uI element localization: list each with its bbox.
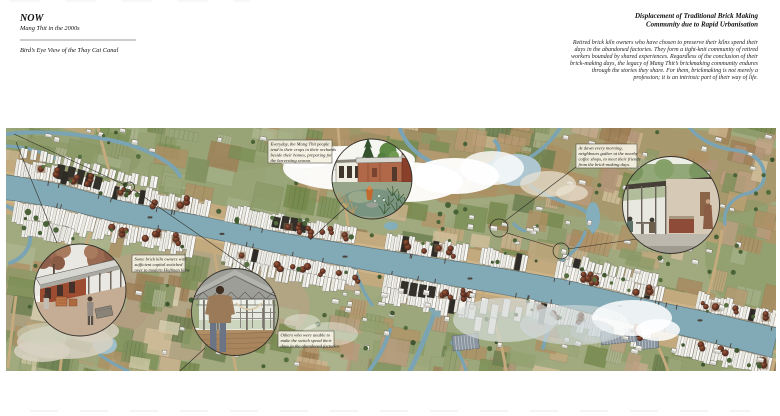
svg-text:neighbours gather at the nearb: neighbours gather at the nearby xyxy=(579,151,639,156)
svg-text:NOW: NOW xyxy=(19,13,44,24)
svg-text:Community due to Rapid Urbanis: Community due to Rapid Urbanisation xyxy=(646,21,758,29)
svg-text:Displacement of Traditional Br: Displacement of Traditional Brick Making xyxy=(634,12,759,20)
svg-text:Mang Thit in the 2000s: Mang Thit in the 2000s xyxy=(19,25,80,32)
svg-text:through the stories they share: through the stories they share. For them… xyxy=(592,68,758,74)
svg-text:profession; it is an intrinsic: profession; it is an intrinsic part of t… xyxy=(632,74,758,81)
svg-text:sufficient capital switched: sufficient capital switched xyxy=(135,262,184,267)
svg-text:tend to their crops in their o: tend to their crops in their orchards xyxy=(271,147,337,152)
svg-text:from the brick-making days.: from the brick-making days. xyxy=(579,162,631,167)
svg-text:Retired brick kiln owners who: Retired brick kiln owners who have chose… xyxy=(572,40,759,46)
svg-text:days in the abandoned factorie: days in the abandoned factories xyxy=(281,344,340,349)
svg-text:brick-making days, the legacy: brick-making days, the legacy of Mang Th… xyxy=(570,60,759,67)
svg-text:Some brick kiln owners with: Some brick kiln owners with xyxy=(135,257,188,262)
svg-text:the harvesting season.: the harvesting season. xyxy=(271,158,312,163)
svg-text:Others who were unable to: Others who were unable to xyxy=(281,333,331,338)
svg-text:Bird’s Eye View of the Thay Ca: Bird’s Eye View of the Thay Cai Canal xyxy=(20,47,119,54)
svg-text:workers bounded by shared expe: workers bounded by shared experiences. R… xyxy=(571,53,759,60)
svg-text:days in the abandoned factorie: days in the abandoned factories. They fo… xyxy=(574,46,759,53)
svg-text:over to modern Hoffman kilns: over to modern Hoffman kilns xyxy=(135,268,190,273)
svg-text:make the switch spend their: make the switch spend their xyxy=(281,338,332,343)
